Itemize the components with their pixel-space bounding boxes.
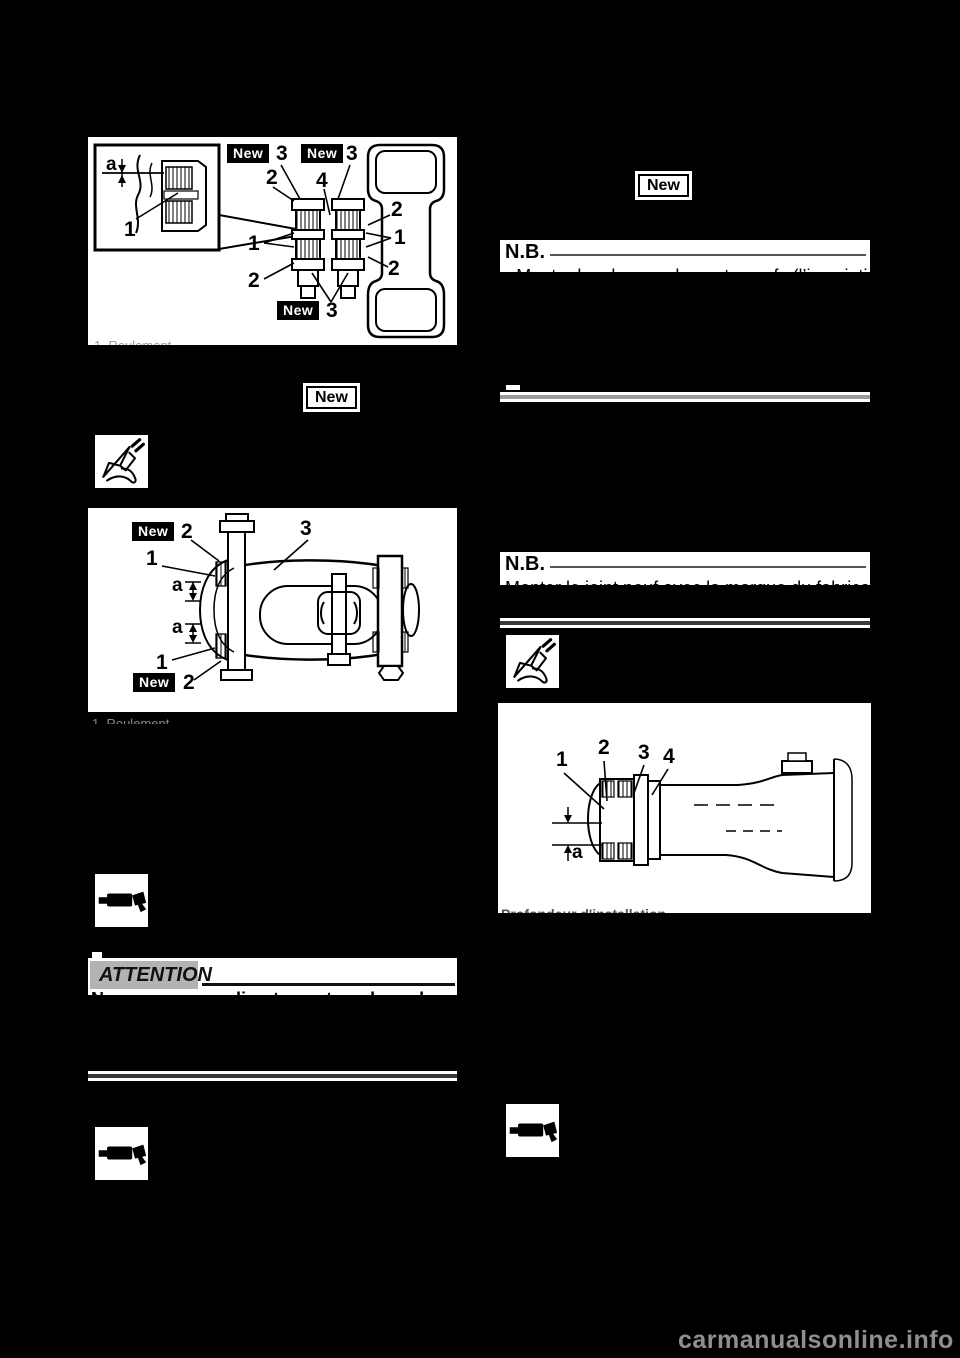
- section-end-rule: [500, 618, 870, 628]
- driver-tool-icon: [93, 872, 150, 929]
- fig3-callout-4: 4: [663, 746, 675, 767]
- attention-clipped-text: Ne pas appuyer directement sur le roulem…: [91, 989, 457, 995]
- fig2-callout-2-top: 2: [181, 521, 193, 542]
- fig2-callout-1-bottom: 1: [156, 652, 168, 673]
- fig2-new-badge-top: New: [132, 522, 174, 541]
- figure-swingarm-side-view: New 2 1 a a 1 New 2 3: [88, 508, 457, 712]
- nb-clipped-text: Monter le joint neuf avec la marque du f…: [505, 578, 870, 585]
- fig1-new-badge-top-left: New: [227, 144, 269, 163]
- fig2-new-badge-bottom: New: [133, 673, 175, 692]
- new-badge-right: New: [635, 171, 692, 200]
- fig2-caption-fragment: 1. Roulement: [92, 716, 169, 724]
- figure3-line-art: [498, 703, 871, 913]
- section-end-rule: [88, 1071, 457, 1081]
- fig1-inset-callout-1: 1: [124, 219, 136, 240]
- fig1-callout-3c: 3: [326, 300, 338, 321]
- fig3-callout-1: 1: [556, 749, 568, 770]
- new-badge-left: New: [303, 383, 360, 412]
- fig3-dim-a: a: [572, 843, 583, 862]
- attention-heading: ATTENTION: [90, 961, 198, 989]
- fig1-callout-2-top: 2: [266, 167, 278, 188]
- driver-tool-icon: [93, 1125, 150, 1182]
- fig1-callout-3a: 3: [276, 143, 288, 164]
- fig2-callout-3: 3: [300, 518, 312, 539]
- fig1-callout-2-left: 2: [248, 270, 260, 291]
- fig1-callout-3b: 3: [346, 143, 358, 164]
- manual-page: { "watermark": { "text": "carmanualsonli…: [0, 0, 960, 1358]
- fig1-inset-dim-a: a: [106, 155, 117, 174]
- fig1-callout-2-right-bottom: 2: [388, 258, 400, 279]
- figure-swingarm-bearing-exploded: a 1 New 3 New 3 2 4 2 1 2 1 2 New 3 1. R…: [88, 137, 457, 345]
- nb-rule: [550, 254, 866, 256]
- fig1-callout-2-right-top: 2: [391, 199, 403, 220]
- text-remnant: [506, 385, 520, 390]
- nb-rule: [550, 566, 866, 568]
- nb-clipped-text: • Monter les deux roulements neufs (l’in…: [505, 266, 870, 272]
- figure-relay-arm-section: 1 2 3 4 a Profondeur d'installation: [498, 703, 871, 913]
- vernier-caliper-icon: [504, 633, 561, 690]
- fig1-new-badge-bottom: New: [277, 301, 319, 320]
- nb-heading: N.B.: [505, 241, 545, 264]
- fig2-dim-a-top: a: [172, 576, 183, 595]
- watermark-text: carmanualsonline.info: [678, 1326, 954, 1355]
- vernier-caliper-icon: [93, 433, 150, 490]
- fig1-new-badge-top-mid: New: [301, 144, 343, 163]
- fig2-callout-1-top: 1: [146, 548, 158, 569]
- attention-rule: [202, 983, 455, 986]
- nb-section-2: N.B. Monter le joint neuf avec la marque…: [500, 552, 870, 585]
- driver-tool-icon: [504, 1102, 561, 1159]
- attention-section: ATTENTION Ne pas appuyer directement sur…: [88, 958, 457, 995]
- fig3-caption-fragment: Profondeur d'installation: [501, 906, 666, 913]
- fig1-caption-fragment: 1. Roulement: [94, 338, 171, 345]
- fig1-callout-1-right: 1: [394, 227, 406, 248]
- nb-heading: N.B.: [505, 553, 545, 576]
- section-end-rule: [500, 392, 870, 402]
- fig3-callout-3: 3: [638, 742, 650, 763]
- fig3-callout-2: 2: [598, 737, 610, 758]
- nb-section-1: N.B. • Monter les deux roulements neufs …: [500, 240, 870, 272]
- fig1-callout-1-left: 1: [248, 233, 260, 254]
- fig2-callout-2-bottom: 2: [183, 672, 195, 693]
- fig2-dim-a-bottom: a: [172, 618, 183, 637]
- fig1-callout-4: 4: [316, 170, 328, 191]
